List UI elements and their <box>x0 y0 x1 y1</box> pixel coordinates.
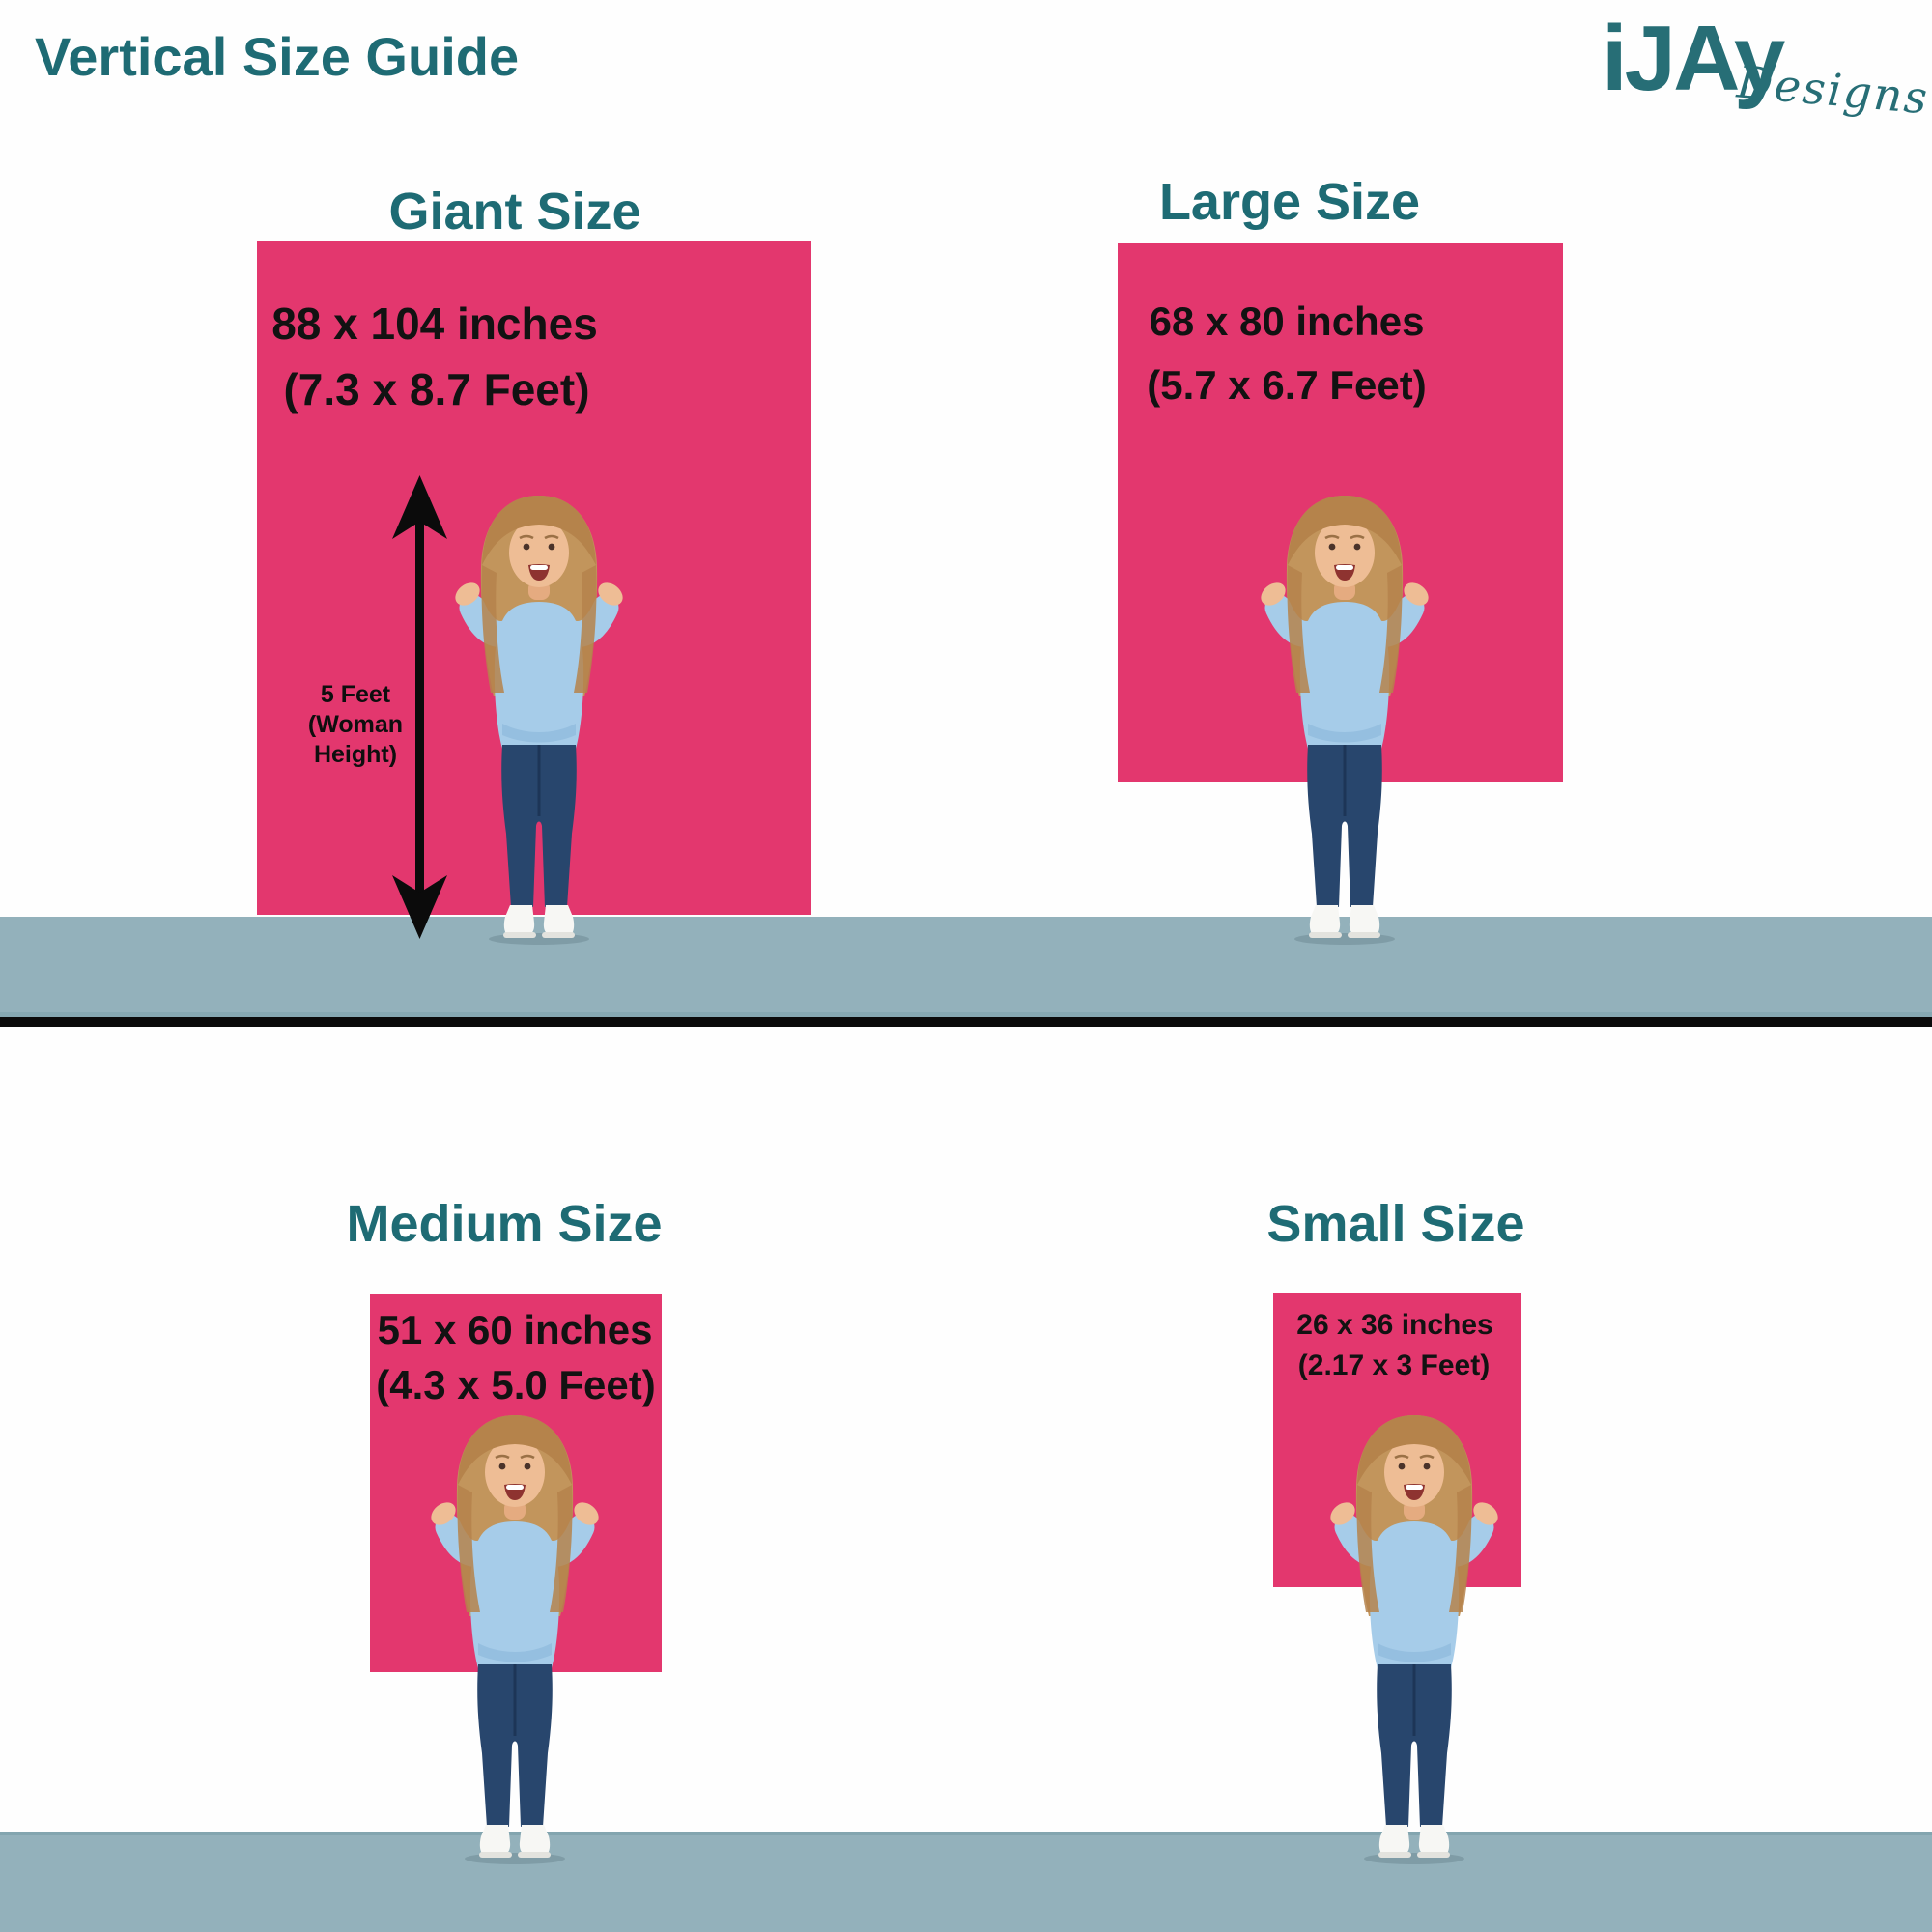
panel-giant-heading: Giant Size <box>388 182 640 241</box>
woman-figure <box>433 492 645 946</box>
panel-large-inches: 68 x 80 inches <box>1150 301 1425 342</box>
height-marker-line1: 5 Feet <box>321 681 390 709</box>
panel-small-feet: (2.17 x 3 Feet) <box>1298 1351 1490 1380</box>
panel-large-feet: (5.7 x 6.7 Feet) <box>1147 365 1426 406</box>
height-marker-line3: Height) <box>314 741 397 769</box>
size-guide-infographic: Vertical Size Guide iJAy Designs Giant S… <box>0 0 1932 1932</box>
panel-small-heading: Small Size <box>1266 1194 1524 1254</box>
height-marker-line2: (Woman <box>308 711 403 739</box>
floor-band-lower <box>0 1832 1932 1932</box>
panel-large-heading: Large Size <box>1159 172 1420 232</box>
panel-medium-inches: 51 x 60 inches <box>378 1310 653 1350</box>
brand-logo-subtext: Designs <box>1735 55 1931 124</box>
woman-figure <box>1308 1411 1520 1865</box>
panel-giant-inches: 88 x 104 inches <box>271 301 598 346</box>
woman-figure <box>1238 492 1451 946</box>
woman-figure <box>409 1411 621 1865</box>
panel-medium-feet: (4.3 x 5.0 Feet) <box>376 1365 655 1406</box>
section-divider-line <box>0 1017 1932 1027</box>
panel-giant-feet: (7.3 x 8.7 Feet) <box>283 367 589 412</box>
floor-band-upper <box>0 917 1932 1017</box>
panel-small-inches: 26 x 36 inches <box>1296 1311 1492 1340</box>
page-title: Vertical Size Guide <box>35 25 519 88</box>
panel-medium-heading: Medium Size <box>346 1194 662 1254</box>
